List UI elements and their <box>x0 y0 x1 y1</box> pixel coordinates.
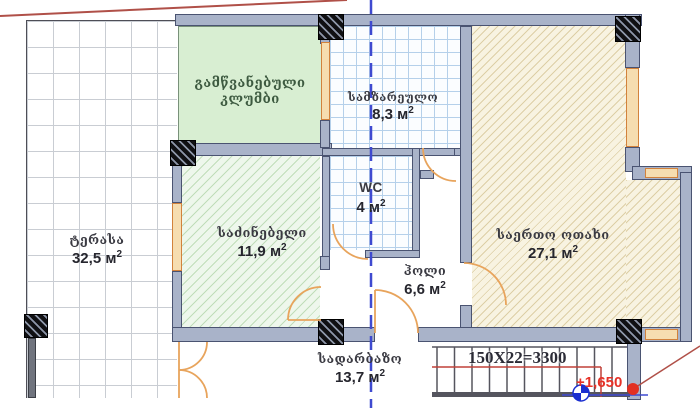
door-arc-bedroom <box>288 287 321 320</box>
door-arc-lobby-double <box>179 342 207 398</box>
stairs-dimension-text: 150X22=3300 <box>468 348 566 368</box>
elevation-mark-text: +1,650 <box>576 374 622 391</box>
red-roof-line-top <box>0 0 347 16</box>
room-label-terrace: ტერასა 32,5 м2 <box>36 232 158 268</box>
room-label-living-room: საერთო ოთახი 27,1 м2 <box>480 227 626 263</box>
red-node-dot <box>627 383 639 395</box>
room-label-kitchen: სამზარეულო 8,3 м2 <box>330 90 456 125</box>
door-arc-living-room <box>464 263 506 305</box>
room-label-hall: ჰოლი 6,6 м2 <box>385 263 465 299</box>
room-label-wc: WC 4 м2 <box>336 180 406 218</box>
room-label-bedroom: საძინებელი 11,9 м2 <box>195 225 329 261</box>
door-arc-kitchen <box>423 148 456 181</box>
floor-plan-canvas: ტერასა 32,5 м2 გამწვანებული კლუმბი სამზა… <box>0 0 700 415</box>
door-arc-wc <box>333 224 368 259</box>
red-roof-line-bottom <box>633 346 700 389</box>
room-label-flowerbed: გამწვანებული კლუმბი <box>180 76 320 109</box>
room-label-entrance-lobby: სადარბაზო 13,7 м2 <box>290 351 430 387</box>
